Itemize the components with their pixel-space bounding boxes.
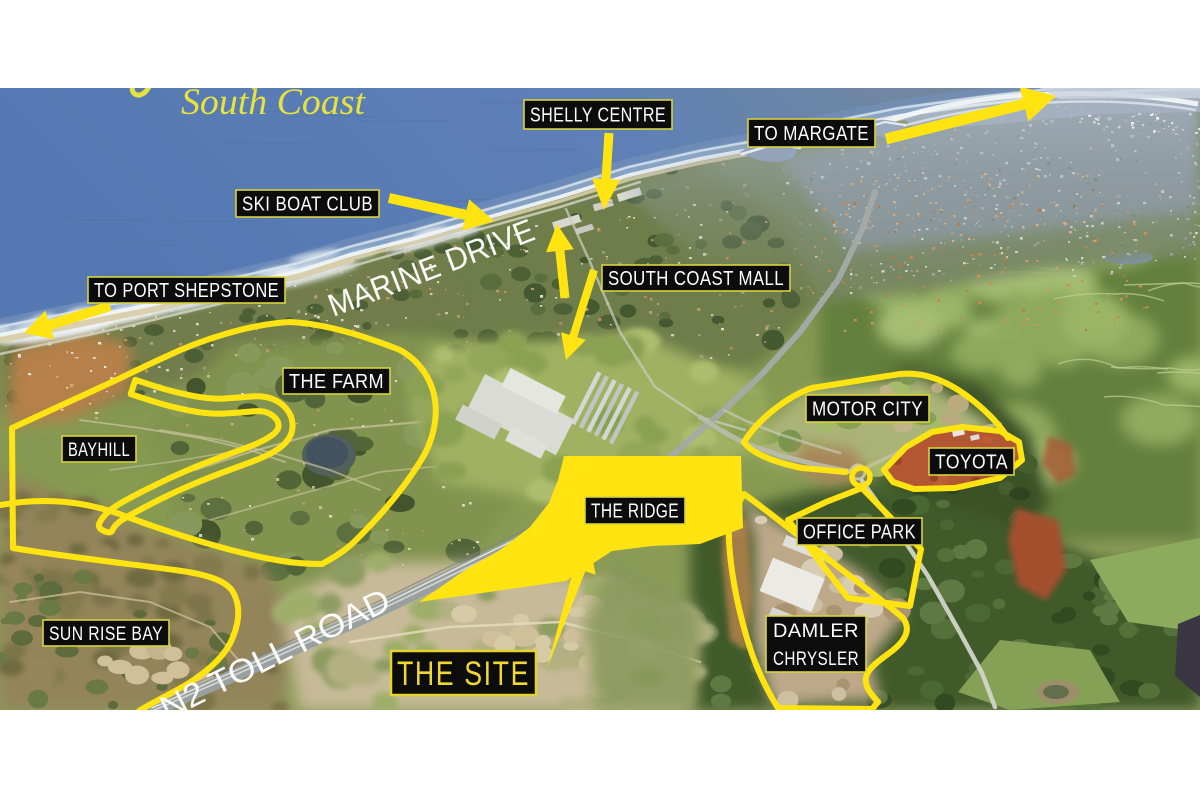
svg-text:TO MARGATE: TO MARGATE <box>754 123 869 145</box>
svg-text:SUN RISE BAY: SUN RISE BAY <box>49 624 163 645</box>
svg-text:SHELLY CENTRE: SHELLY CENTRE <box>530 105 666 127</box>
svg-text:CHRYSLER: CHRYSLER <box>773 649 859 670</box>
svg-text:South Coast: South Coast <box>181 82 367 123</box>
svg-text:SKI BOAT CLUB: SKI BOAT CLUB <box>242 194 373 216</box>
svg-text:TOYOTA: TOYOTA <box>935 452 1008 474</box>
svg-text:THE FARM: THE FARM <box>289 371 384 393</box>
svg-text:THE RIDGE: THE RIDGE <box>591 501 679 523</box>
svg-text:THE SITE: THE SITE <box>397 655 530 693</box>
svg-text:OFFICE PARK: OFFICE PARK <box>803 522 916 544</box>
svg-text:DAMLER: DAMLER <box>773 621 859 642</box>
svg-text:TO PORT SHEPSTONE: TO PORT SHEPSTONE <box>94 280 279 302</box>
svg-text:BAYHILL: BAYHILL <box>68 440 130 461</box>
svg-text:SOUTH COAST MALL: SOUTH COAST MALL <box>608 268 784 290</box>
svg-text:MOTOR CITY: MOTOR CITY <box>812 399 923 421</box>
